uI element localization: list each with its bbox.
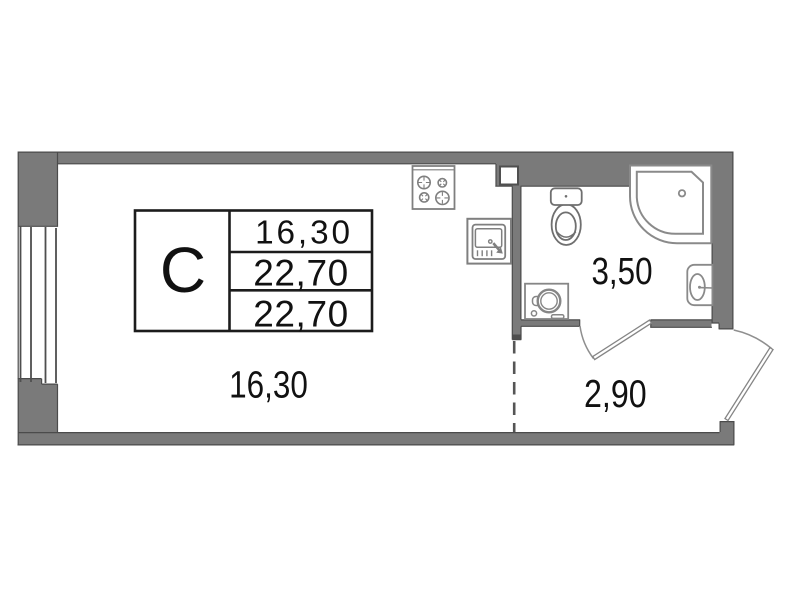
svg-text:3,50: 3,50 <box>591 250 652 293</box>
svg-text:22,70: 22,70 <box>253 293 349 334</box>
svg-text:2,90: 2,90 <box>584 371 647 416</box>
svg-text:16,30: 16,30 <box>255 214 353 251</box>
svg-text:22,70: 22,70 <box>253 252 349 293</box>
svg-text:С: С <box>160 234 206 306</box>
svg-text:16,30: 16,30 <box>229 364 308 407</box>
